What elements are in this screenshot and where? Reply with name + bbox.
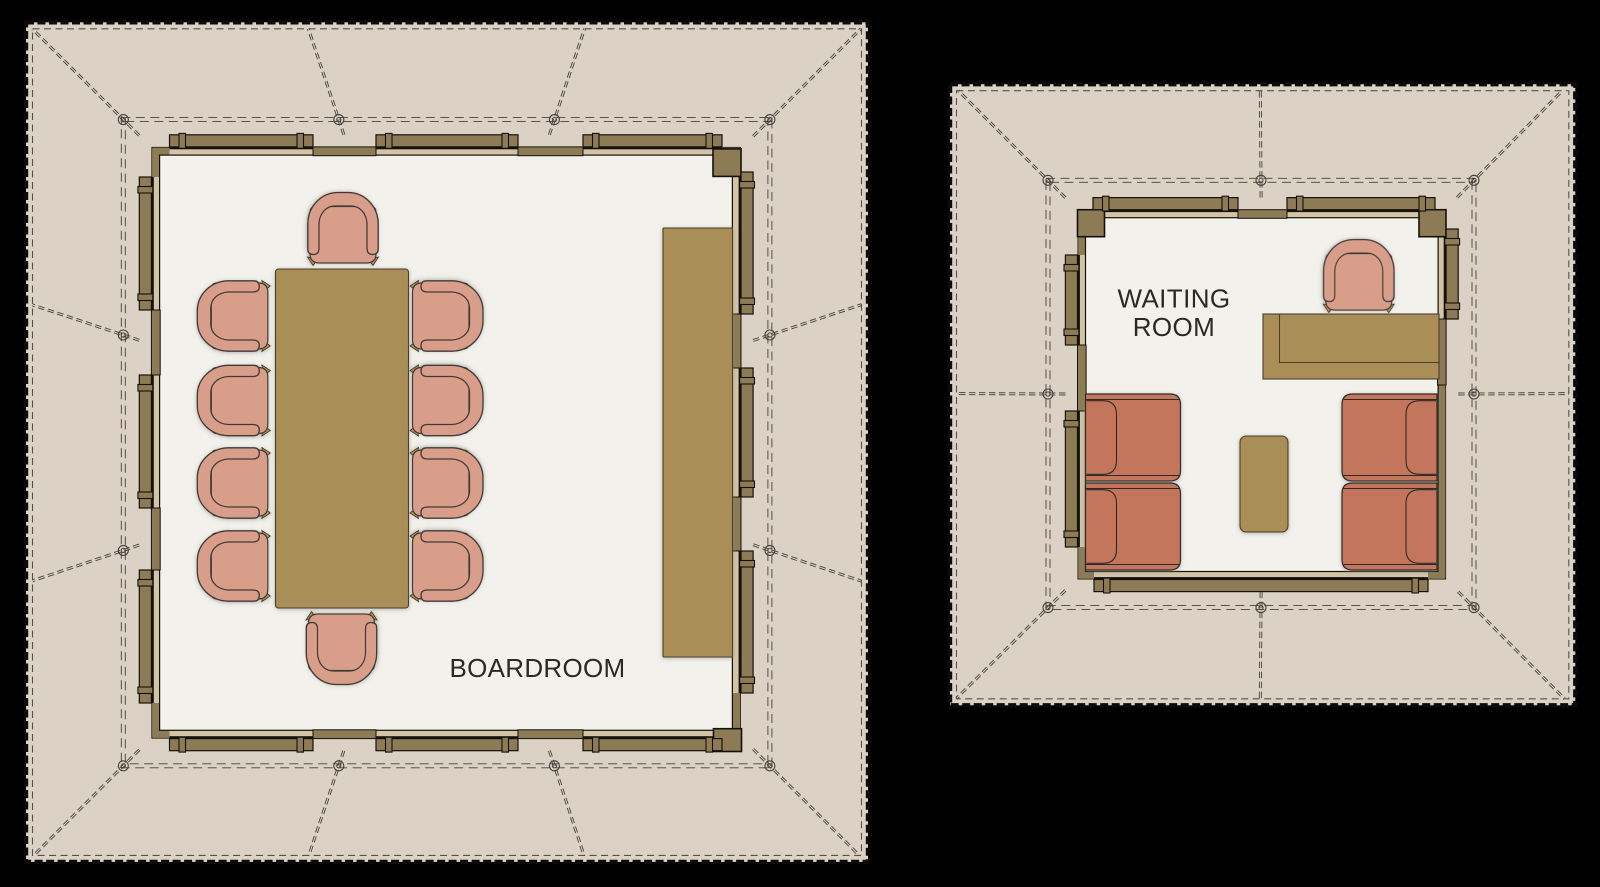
svg-text:ROOM: ROOM <box>1133 312 1215 342</box>
svg-text:WAITING: WAITING <box>1117 284 1230 314</box>
svg-text:BOARDROOM: BOARDROOM <box>449 653 625 683</box>
